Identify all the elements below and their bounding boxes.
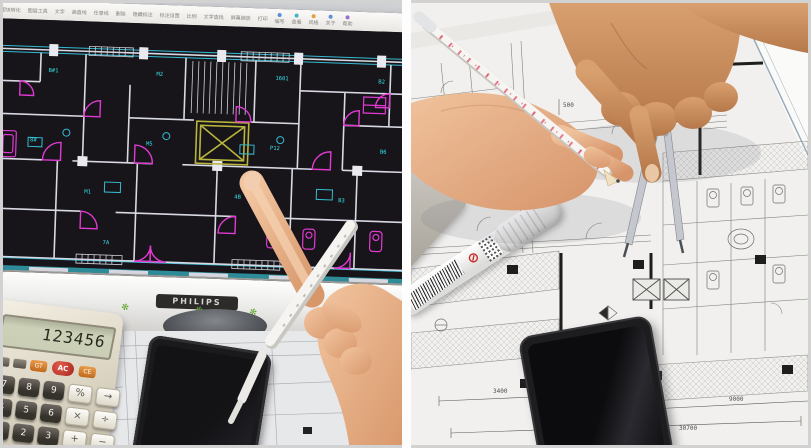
calculator-key[interactable]: %: [67, 383, 93, 404]
photo-divider: [402, 0, 411, 448]
drafting-hands: [411, 3, 808, 445]
menu-item[interactable]: 图块转化: [3, 5, 21, 14]
menu-item[interactable]: 帮助: [342, 14, 352, 27]
pointing-hand: [200, 131, 402, 445]
fingernail: [645, 164, 659, 182]
calculator-small-key[interactable]: [3, 356, 10, 367]
compass-needle: [624, 243, 628, 257]
svg-text:M2: M2: [156, 72, 163, 78]
calculator-small-key[interactable]: [13, 358, 27, 369]
svg-text:7A: 7A: [102, 240, 110, 246]
calculator-key[interactable]: 7: [3, 374, 16, 394]
calculator-key[interactable]: +: [61, 429, 87, 445]
calculator-key[interactable]: ×: [64, 406, 90, 427]
pencil-eraser: [419, 17, 431, 27]
calculator-key[interactable]: 5: [15, 400, 38, 420]
photo-collage: 图块转化 图层工具 文字 画直线 任意线 删除 隐藏标注 标注设置 比例 文字查…: [0, 0, 811, 448]
calculator-display: 123456: [3, 314, 117, 360]
menu-item[interactable]: 任意线: [94, 8, 109, 17]
calculator-key[interactable]: 6: [39, 403, 62, 423]
menu-item[interactable]: 画直线: [72, 7, 87, 16]
calculator-key[interactable]: 1: [3, 420, 10, 440]
menu-item[interactable]: 图层工具: [28, 6, 48, 15]
svg-text:1601: 1601: [275, 76, 288, 82]
calculator-key[interactable]: 3: [37, 426, 60, 445]
menu-item[interactable]: 编号: [274, 12, 284, 25]
svg-text:8#: 8#: [30, 137, 38, 143]
desk-calculator: 123456 GT AC CE 7 8 9 % → 4 5 6 × ÷ 1 2: [3, 299, 124, 445]
menu-item[interactable]: 文字: [55, 7, 65, 15]
calculator-key[interactable]: 4: [3, 397, 13, 417]
menu-item[interactable]: 隐藏标注: [133, 9, 153, 18]
svg-text:B#1: B#1: [48, 68, 58, 74]
menu-item[interactable]: 关于: [325, 14, 335, 27]
calculator-key[interactable]: →: [95, 387, 121, 408]
calculator-key[interactable]: 8: [17, 377, 40, 397]
menu-item[interactable]: 屏幕缩放: [231, 13, 251, 22]
compass-lead: [680, 240, 683, 253]
calculator-key[interactable]: 9: [42, 380, 65, 400]
calculator-key[interactable]: −: [89, 433, 115, 445]
left-photo-cad-monitor: 图块转化 图层工具 文字 画直线 任意线 删除 隐藏标注 标注设置 比例 文字查…: [3, 3, 402, 445]
calculator-key[interactable]: ÷: [92, 410, 118, 431]
svg-text:M5: M5: [146, 141, 153, 147]
menu-item[interactable]: 文字查找: [204, 12, 224, 21]
calculator-gt-key[interactable]: GT: [30, 359, 48, 372]
menu-item[interactable]: 比例: [187, 11, 197, 19]
calculator-key[interactable]: 2: [12, 423, 35, 443]
pencil-lead: [616, 179, 620, 183]
calculator-key[interactable]: 0: [3, 443, 7, 445]
menu-item[interactable]: 打印: [258, 14, 268, 22]
calculator-ce-key[interactable]: CE: [78, 365, 96, 378]
menu-item[interactable]: 风格: [308, 13, 318, 26]
right-photo-drafting: 3400 9000 30700 500 200 0 0 1 4 ⊘: [411, 3, 808, 445]
index-finger: [639, 115, 652, 173]
calculator-ac-key[interactable]: AC: [51, 360, 75, 377]
menu-item[interactable]: 查看: [291, 12, 301, 25]
svg-text:M1: M1: [84, 189, 91, 195]
menu-item[interactable]: 标注设置: [160, 10, 180, 19]
menu-item[interactable]: 删除: [116, 9, 126, 17]
svg-text:B2: B2: [378, 80, 385, 86]
